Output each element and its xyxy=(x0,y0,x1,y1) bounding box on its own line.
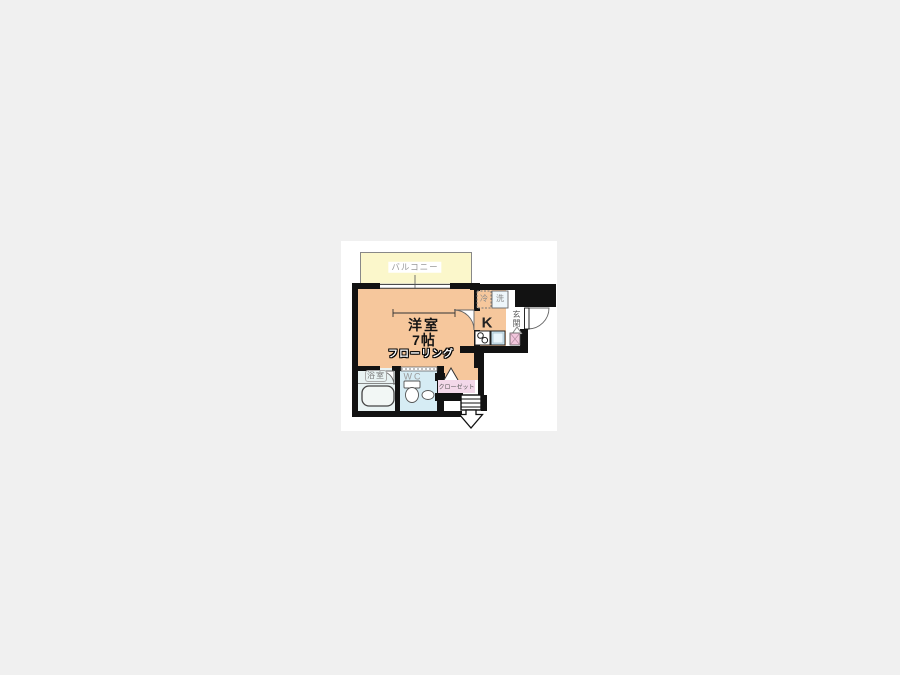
entrance-door-leaf-icon xyxy=(525,308,530,329)
bathroom-label: 浴室 xyxy=(365,370,387,382)
room-door-swing-icon xyxy=(454,310,474,330)
fridge-label: 冷 xyxy=(480,295,488,303)
entrance-door-swing-icon xyxy=(528,308,549,329)
room-name-label: 洋室 xyxy=(408,318,440,332)
toilet-icon xyxy=(404,381,420,403)
floor-plan-canvas: バルコニー 洋室 7帖 フローリング K 冷 洗 玄関 浴室 WC クローゼット xyxy=(341,241,557,431)
entrance-label: 玄関 xyxy=(512,310,520,328)
kitchen-sink-icon xyxy=(491,331,505,345)
wc-folding-door-icon xyxy=(401,367,437,371)
entry-arrow-icon xyxy=(460,410,483,428)
flooring-label: フローリング xyxy=(388,350,454,360)
bathtub-icon xyxy=(358,384,395,407)
stove-icon xyxy=(475,331,490,345)
closet-door-icon xyxy=(444,368,458,380)
closet-label-box: クローゼット xyxy=(438,380,475,393)
kitchen-label: K xyxy=(482,316,493,331)
dimension-line xyxy=(393,309,455,317)
wc-basin-icon xyxy=(422,391,434,400)
shoe-cabinet-icon xyxy=(510,333,520,345)
toilet-label: WC xyxy=(404,373,423,382)
room-size-label: 7帖 xyxy=(412,333,436,347)
closet-label: クローゼット xyxy=(438,382,474,391)
washer-label: 洗 xyxy=(496,295,504,303)
balcony-window-icon xyxy=(380,275,450,289)
balcony-label: バルコニー xyxy=(388,262,441,273)
fixtures-overlay xyxy=(341,241,557,431)
stairs-icon xyxy=(461,395,481,410)
page-background: バルコニー 洋室 7帖 フローリング K 冷 洗 玄関 浴室 WC クローゼット xyxy=(0,0,900,675)
